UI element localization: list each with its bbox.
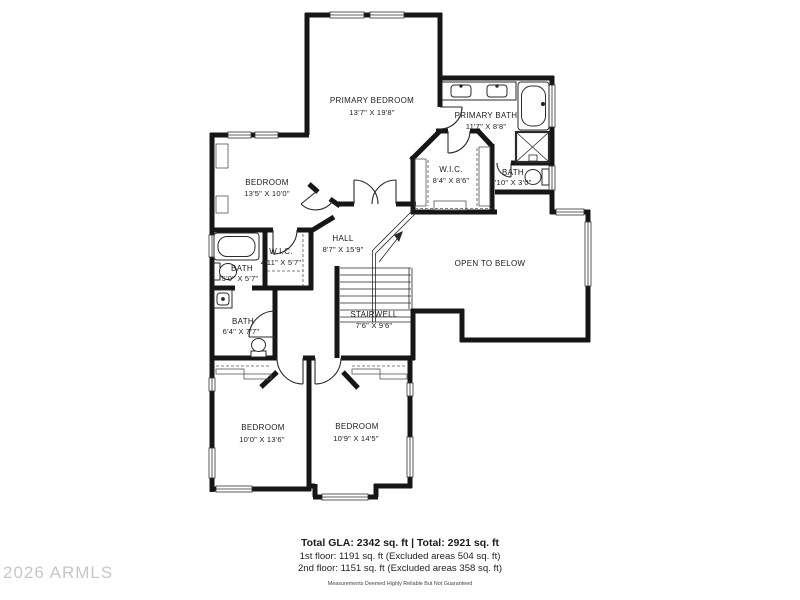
- door-bedroom-bottom-left: [277, 358, 303, 384]
- dims-bedroom-bottom-left: 10'0" X 13'6": [239, 435, 285, 444]
- door-bedroom-left: [301, 191, 332, 210]
- label-hall: HALL: [332, 234, 353, 243]
- window: [228, 132, 251, 138]
- toilet-bath-vanity: [251, 339, 266, 358]
- stair-divider-rail: [373, 209, 418, 322]
- window: [370, 12, 404, 18]
- dims-bath-vanity: 6'4" X 7'7": [223, 327, 260, 336]
- door-primary-wic: [448, 131, 470, 153]
- label-primary-wic: W.I.C.: [439, 165, 463, 174]
- dims-primary-wic: 8'4" X 8'6": [433, 176, 470, 185]
- closet-bedroom-bottom-left: [216, 366, 271, 379]
- dims-hall: 8'7" X 15'9": [322, 245, 363, 254]
- label-bath-tub: BATH: [231, 264, 253, 273]
- label-primary-bath: PRIMARY BATH: [455, 111, 518, 120]
- label-bedroom-bottom-left: BEDROOM: [241, 423, 284, 432]
- vanity-primary-bath: [442, 82, 516, 100]
- dims-bedroom-left: 13'5" X 10'0": [244, 189, 290, 198]
- window: [585, 222, 591, 286]
- window: [330, 12, 364, 18]
- dims-primary-bath: 11'7" X 8'8": [466, 122, 507, 131]
- floor-plan-page: PRIMARY BEDROOM 13'7" X 19'8" PRIMARY BA…: [0, 0, 800, 600]
- footer-first-floor: 1st floor: 1191 sq. ft (Excluded areas 5…: [300, 551, 501, 562]
- dims-stairwell: 7'6" X 9'6": [356, 321, 393, 330]
- footer: Total GLA: 2342 sq. ft | Total: 2921 sq.…: [298, 537, 502, 587]
- shower-stall: [516, 132, 549, 162]
- label-primary-bedroom: PRIMARY BEDROOM: [330, 96, 414, 105]
- label-bedroom-bottom-right: BEDROOM: [335, 422, 378, 431]
- label-bedroom-left: BEDROOM: [245, 178, 288, 187]
- dims-bath-small: 5'10" X 3'0": [490, 178, 531, 187]
- vanity-bath-vanity: [214, 290, 232, 308]
- label-wic-small: W.I.C.: [269, 247, 293, 256]
- dims-bedroom-bottom-right: 10'9" X 14'5": [333, 434, 379, 443]
- label-bath-vanity: BATH: [232, 317, 254, 326]
- window: [556, 209, 584, 215]
- window: [216, 486, 252, 492]
- dims-bath-tub: 5'0" X 5'7": [222, 274, 259, 283]
- stair-arrow-head: [394, 231, 403, 242]
- label-open-to-below: OPEN TO BELOW: [455, 259, 526, 268]
- double-door-primary-bedroom: [354, 180, 396, 204]
- shelving-bedroom-left: [216, 144, 228, 213]
- closet-bedroom-bottom-right: [352, 366, 407, 379]
- window: [549, 85, 555, 127]
- floor-plan-svg: PRIMARY BEDROOM 13'7" X 19'8" PRIMARY BA…: [0, 0, 800, 600]
- door-bedroom-bottom-right: [315, 358, 341, 384]
- footer-total-line: Total GLA: 2342 sq. ft | Total: 2921 sq.…: [301, 537, 500, 549]
- window: [255, 132, 278, 138]
- label-bath-small: BATH: [502, 168, 524, 177]
- bathtub-bath-tub: [214, 233, 259, 260]
- stairwell-graphic: [340, 209, 417, 322]
- room-labels: PRIMARY BEDROOM 13'7" X 19'8" PRIMARY BA…: [222, 96, 532, 444]
- watermark: 2026 ARMLS: [3, 563, 113, 582]
- dims-wic-small: 4'11" X 5'7": [261, 258, 302, 267]
- window: [407, 437, 413, 477]
- window: [549, 166, 555, 190]
- window: [407, 383, 413, 396]
- footer-second-floor: 2nd floor: 1151 sq. ft (Excluded areas 3…: [298, 563, 502, 574]
- dims-primary-bedroom: 13'7" X 19'8": [349, 108, 395, 117]
- window: [209, 378, 215, 391]
- window: [322, 494, 368, 500]
- bathtub-primary: [518, 82, 549, 130]
- label-stairwell: STAIRWELL: [350, 310, 398, 319]
- footer-disclaimer: Measurements Deemed Highly Reliable But …: [328, 581, 472, 587]
- window: [209, 448, 215, 478]
